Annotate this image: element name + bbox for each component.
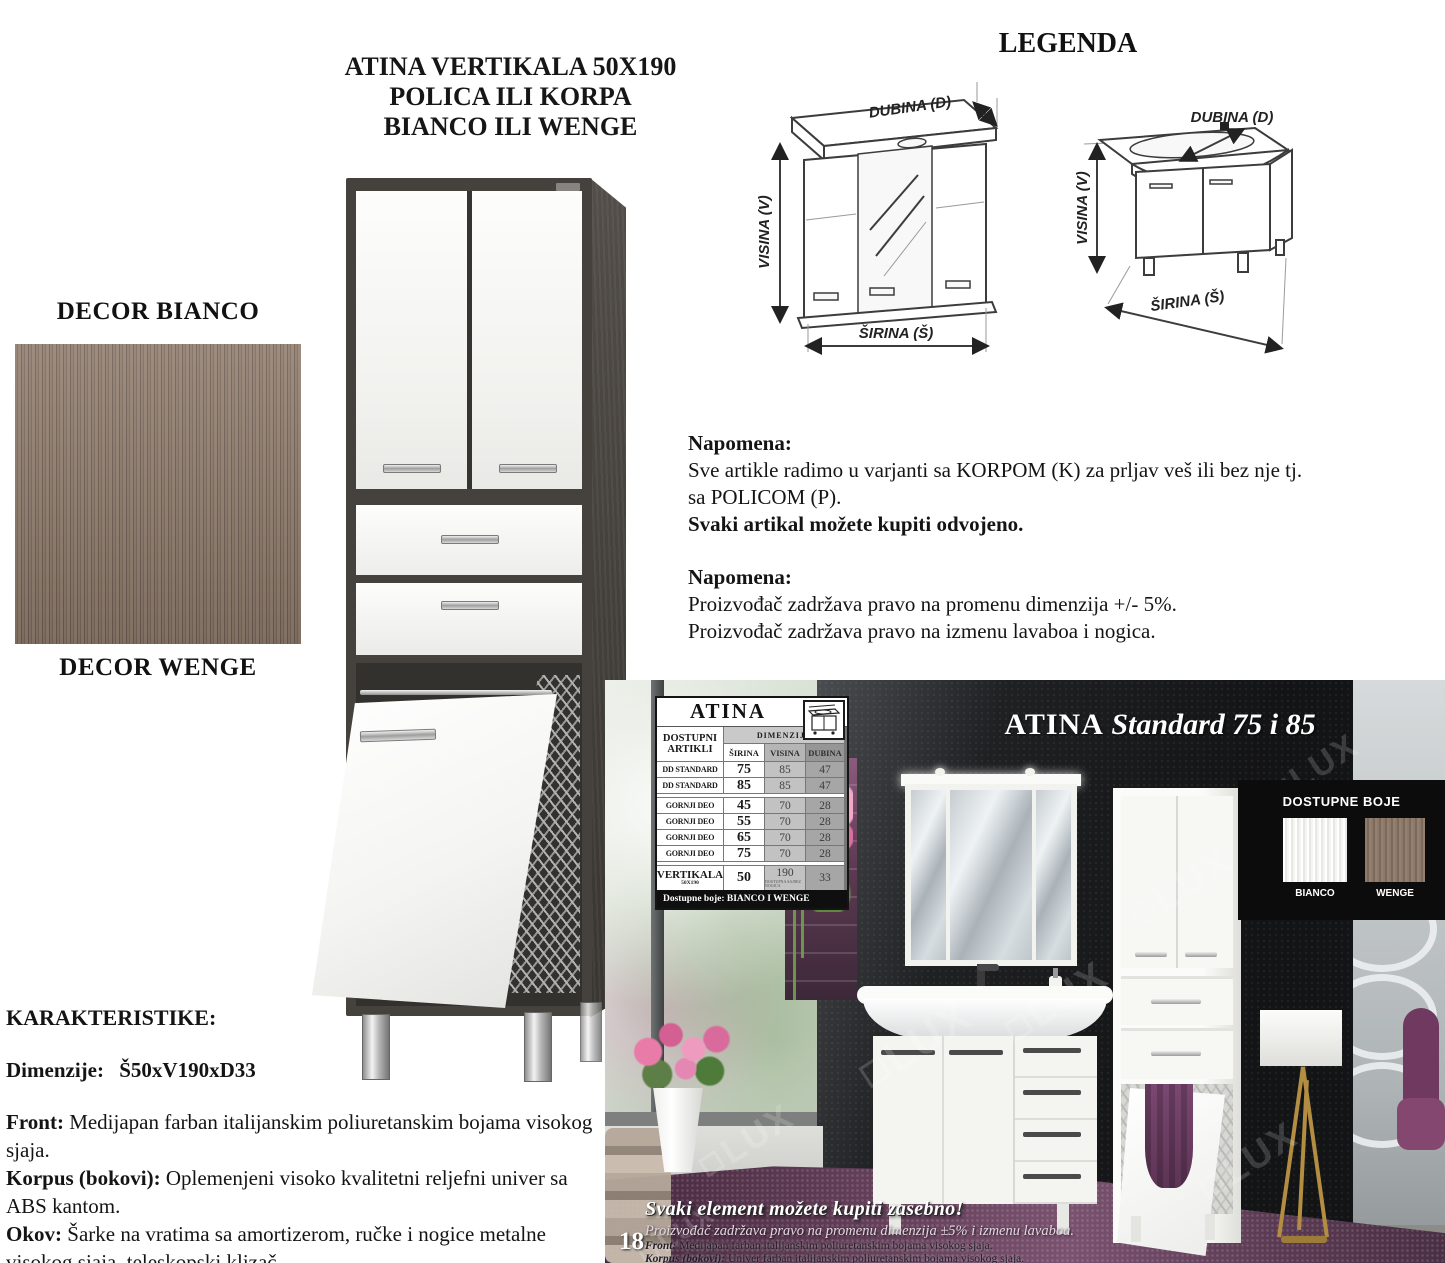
table-cell-dubina: 28 [806,830,844,845]
note-line: sa POLICOM (P). [688,484,1433,511]
footer-front-label: Front: [645,1240,676,1252]
cabinet-left-door [356,191,467,489]
table-cell-visina: 70 [765,798,805,813]
table-cell-sirina: 75 [724,846,764,861]
characteristics-section: KARAKTERISTIKE: Dimenzije: Š50xV190xD33 … [6,1004,610,1263]
legend-title: LEGENDA [948,28,1188,60]
product-title-line1: ATINA VERTIKALA 50X190 [308,52,713,82]
tall-cabinet-drawer [1121,976,1233,1025]
front-label: Front: [6,1110,64,1134]
mirror-lamp [1025,768,1035,776]
drawer-handle [1023,1090,1081,1095]
table-footer: Dostupne boje: BIANCO I WENGE [657,890,847,908]
dimensions-label: Dimenzije: [6,1058,104,1082]
table-cell-dubina: 28 [806,814,844,829]
purple-towel [1145,1084,1193,1188]
drawer-handle [1023,1174,1081,1179]
korpus-label: Korpus (bokovi): [6,1166,161,1190]
drawer-handle [1023,1048,1081,1053]
col-header-artikli: DOSTUPNI ARTIKLI [657,727,723,761]
available-colors-panel: DOSTUPNE BOJE BIANCO WENGE [1238,780,1445,920]
table-cell-sirina: 65 [724,830,764,845]
right-wall-panel [1353,680,1445,1263]
table-cell-visina: 70 [765,814,805,829]
photo-footer: Svaki element možete kupiti zasebno! Pro… [645,1198,1245,1263]
dimensions-line: Dimenzije: Š50xV190xD33 [6,1056,610,1084]
table-cell-sirina: 45 [724,798,764,813]
photo-title: ATINA Standard 75 i 85 [995,708,1325,742]
photo-title-brand: ATINA [1004,708,1103,741]
cabinet-upper-doors [356,191,582,489]
note-line: Sve artikle radimo u varjanti sa KORPOM … [688,457,1433,484]
vanity-drawers [1015,1036,1097,1204]
table-cell-name: GORNJI DEO [657,798,723,813]
footer-front-text: Medijapan farban italijanskim poliuretan… [676,1240,992,1252]
note-line: Proizvođač zadržava pravo na izmenu lava… [688,618,1433,645]
table-cell-sirina: 55 [724,814,764,829]
faucet-spout [977,964,999,971]
table-cell-visina: 70 [765,846,805,861]
materials-text: Front: Medijapan farban italijanskim pol… [6,1108,610,1263]
footer-korpus-line: Korpus (bokovi): Univer farban italijans… [645,1253,1245,1263]
table-cell-visina: 85 [765,762,805,777]
vanity-drawer [1015,1120,1097,1162]
legend-sirina-label: ŠIRINA (Š) [859,324,933,342]
table-cell-dubina: 47 [806,778,844,793]
wenge-swatch [1365,818,1425,882]
table-cell-dubina: 47 [806,762,844,777]
table-cell-name: GORNJI DEO [657,814,723,829]
table-cell-dubina: 28 [806,798,844,813]
tall-cabinet-drawer [1121,1028,1233,1079]
drawer-handle [441,535,499,544]
cabinet-drawer-1 [356,505,582,575]
product-title-line3: BIANCO ILI WENGE [308,112,713,142]
mirror-pane [911,790,946,960]
okov-label: Okov: [6,1222,62,1246]
dimension-table: ATINA DOSTUPNI ARTIKLI DIMENZIJE [655,696,849,910]
table-header: ATINA [657,698,847,727]
brand-mark [556,183,580,191]
legend-visina-label: VISINA (V) [1074,171,1091,245]
basket-rim [360,690,552,695]
note-heading: Napomena: [688,430,1433,457]
drawer-handle [1151,1051,1201,1056]
col-header-dubina: DUBINA [806,744,844,761]
col-header-sirina: ŠIRINA [724,744,764,761]
table-cell-dubina: 33 [806,866,844,890]
footer-bold-line: Svaki element možete kupiti zasebno! [645,1198,1245,1221]
colors-panel-title: DOSTUPNE BOJE [1238,794,1445,809]
table-cell-visina: 85 [765,778,805,793]
purple-chair-seat [1397,1098,1445,1150]
table-cell-sirina: 75 [724,762,764,777]
footer-italic-line: Proizvođač zadržava pravo na promenu dim… [645,1223,1245,1240]
cabinet-drawer-2 [356,583,582,655]
mirror-pane [950,790,1033,960]
front-text: Medijapan farban italijanskim poliuretan… [6,1110,592,1162]
table-cell-dubina: 28 [806,846,844,861]
legend-diagram-vanity: VISINA (V) DUBINA (D) ŠIRINA (Š) [1070,108,1320,360]
table-cell-name: GORNJI DEO [657,846,723,861]
note-line: Proizvođač zadržava pravo na promenu dim… [688,591,1433,618]
table-cell-name: VERTIKALA 50X190 [657,866,723,890]
note-line-bold: Svaki artikal možete kupiti odvojeno. [688,511,1433,538]
decor-bianco-texture [15,14,301,296]
table-cell-name: GORNJI DEO [657,830,723,845]
door-handle [499,464,557,473]
drawer-handle [1023,1132,1081,1137]
cabinet-right-door [472,191,583,489]
artikli-label: DOSTUPNI ARTIKLI [657,733,723,755]
bianco-swatch [1283,818,1347,882]
door-handle [383,464,441,473]
legend-dubina-label: DUBINA (D) [1191,109,1274,126]
photo-title-rest: Standard 75 i 85 [1104,708,1316,741]
product-title: ATINA VERTIKALA 50X190 POLICA ILI KORPA … [308,52,713,142]
col-header-visina: VISINA [765,744,805,761]
table-brand: ATINA [657,699,799,724]
decor-wenge-label: DECOR WENGE [15,654,301,682]
footer-korpus-label: Korpus (bokovi): [645,1253,725,1263]
okov-text: Šarke na vratima sa amortizerom, ručke i… [6,1222,546,1263]
characteristics-heading: KARAKTERISTIKE: [6,1004,610,1032]
floor-lamp-shade [1260,1010,1342,1066]
table-cell-sirina: 50 [724,866,764,890]
legend-diagram-mirror-cabinet: VISINA (V) ŠIRINA (Š) DUBINA (D) [750,80,1010,358]
door-split [942,1036,944,1204]
vertikala-size: 50X190 [681,881,699,887]
vanity-drawer [1015,1078,1097,1120]
floor-lamp-base [1281,1236,1327,1243]
table-cell-visina: 190 DOSTUPNA SA/BEZ NOGICA [765,866,805,890]
decor-wenge-texture [15,344,301,644]
mirror-cabinet [905,784,1077,966]
door-handle [1185,952,1217,957]
flower-bouquet [623,1014,737,1098]
tilt-door-handle [360,729,436,743]
drawer-handle [441,601,499,610]
table-cell-sirina: 85 [724,778,764,793]
catalog-photo: LUX LUX LUX LUX LUX LUX LUX LUX ATINA [605,680,1445,1263]
table-cell-visina: 70 [765,830,805,845]
product-title-line2: POLICA ILI KORPA [308,82,713,112]
notes-section: Napomena: Sve artikle radimo u varjanti … [688,430,1433,645]
vanity-door-handle [949,1050,1003,1055]
mirror-lamp [935,768,945,776]
table-separator [657,862,844,865]
decor-bianco-label: DECOR BIANCO [15,298,301,326]
wenge-swatch-label: WENGE [1363,888,1427,899]
legend-sirina-label: ŠIRINA (Š) [1149,287,1225,315]
drawer-handle [1151,999,1201,1004]
product-image-vertikala [288,162,640,1087]
table-cell-name: DD STANDARD [657,778,723,793]
mirror-pane [1036,790,1071,960]
footer-front-line: Front: Medijapan farban italijanskim pol… [645,1240,1245,1253]
page-number: 18 [619,1228,644,1256]
table-cell-name: DD STANDARD [657,762,723,777]
visina-note: DOSTUPNA SA/BEZ NOGICA [765,880,805,888]
legend-visina-label: VISINA (V) [756,195,773,269]
door-handle [1135,952,1167,957]
footer-korpus-text: Univer farban italijanskim poliuretanski… [725,1253,1024,1263]
table-grid: DOSTUPNI ARTIKLI DIMENZIJE ŠIRINA VISINA… [657,727,847,890]
note-heading: Napomena: [688,564,1433,591]
vanity-diagram-icon [803,700,845,740]
catalog-page: DECOR BIANCO DECOR WENGE ATINA VERTIKALA… [0,0,1445,1263]
bianco-swatch-label: BIANCO [1283,888,1347,899]
dimensions-value: Š50xV190xD33 [119,1058,256,1082]
table-separator [657,794,844,797]
